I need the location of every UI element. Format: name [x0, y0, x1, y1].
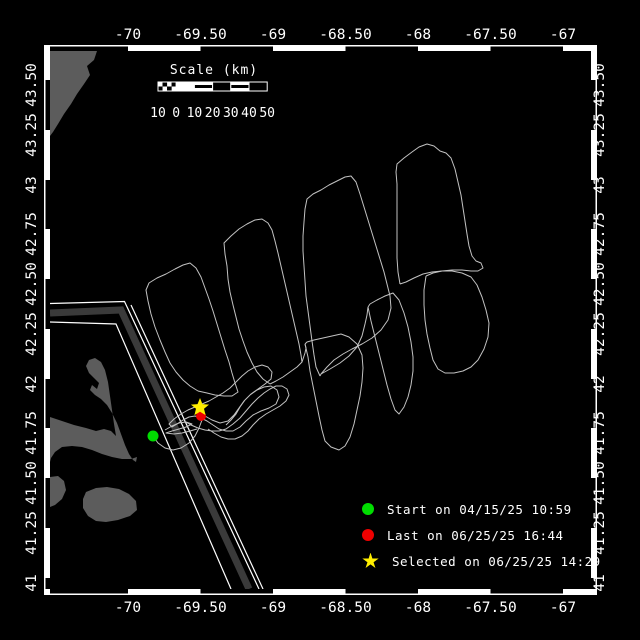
axis-tick-label: 41.50	[592, 461, 608, 505]
axis-tick-label: -67	[550, 600, 576, 616]
axis-tick-label: 42	[592, 375, 608, 392]
axis-tick-label: 41.25	[24, 511, 40, 555]
axis-tick-label: 42.50	[24, 262, 40, 306]
selected-marker-icon	[362, 553, 379, 570]
axis-tick-label: -69	[260, 600, 286, 616]
scale-bar-number: 20	[205, 106, 221, 121]
track-layer	[146, 144, 489, 450]
land-layer	[50, 51, 137, 522]
scale-bar-number: 40	[241, 106, 257, 121]
axis-tick-label: 43.25	[24, 113, 40, 157]
axis-tick-label: -68.50	[319, 600, 371, 616]
axis-tick-label: 42.75	[24, 212, 40, 256]
land-polygon	[50, 476, 66, 507]
axis-tick-label: 43	[24, 176, 40, 193]
start-marker-icon	[362, 503, 374, 515]
axis-tick-label: 41.75	[24, 411, 40, 455]
track-path	[321, 307, 368, 374]
axis-tick-label: 43.50	[24, 63, 40, 107]
axis-tick-label: -68	[405, 600, 431, 616]
axis-tick-label: -67.50	[464, 27, 516, 43]
axis-tick-label: 42	[24, 375, 40, 392]
track-path	[302, 344, 306, 362]
legend-selected-label: Selected on 06/25/25 14:29	[392, 554, 601, 569]
track-path	[303, 176, 391, 376]
axis-tick-label: 41	[592, 574, 608, 591]
axis-tick-label: 41.50	[24, 461, 40, 505]
axis-tick-label: 43	[592, 176, 608, 193]
scale-bar-title: Scale (km)	[158, 63, 270, 78]
legend-start-label: Start on 04/15/25 10:59	[387, 502, 572, 517]
scale-bar	[158, 82, 267, 91]
map-viewport: -70-70-69.50-69.50-69-69-68.50-68.50-68-…	[0, 0, 640, 640]
track-path	[224, 219, 302, 384]
map-canvas[interactable]: -70-70-69.50-69.50-69-69-68.50-68.50-68-…	[0, 0, 640, 640]
land-polygon	[50, 51, 97, 136]
map-frame	[0, 0, 640, 640]
axis-tick-label: 42.25	[24, 312, 40, 356]
legend-item-last: Last on 06/25/25 16:44	[362, 526, 564, 544]
axis-tick-label: -69.50	[174, 27, 226, 43]
axis-tick-label: 42.25	[592, 312, 608, 356]
axis-tick-label: -70	[115, 27, 141, 43]
axis-tick-label: 42.50	[592, 262, 608, 306]
scale-bar-number: 50	[259, 106, 275, 121]
land-polygon	[50, 358, 137, 462]
start-position-marker	[148, 431, 159, 442]
scale-bar-number: 10	[187, 106, 203, 121]
land-polygon	[83, 487, 137, 522]
lane-boundary-line	[131, 305, 263, 589]
axis-tick-label: -69	[260, 27, 286, 43]
track-path	[424, 271, 489, 373]
axis-tick-label: 42.75	[592, 212, 608, 256]
scale-bar-number: 0	[172, 106, 180, 121]
legend-last-label: Last on 06/25/25 16:44	[387, 528, 564, 543]
lane-boundary-line	[50, 322, 231, 589]
axis-tick-label: 41	[24, 574, 40, 591]
axis-tick-label: -67.50	[464, 600, 516, 616]
axis-tick-label: 41.25	[592, 511, 608, 555]
scale-bar-number: 10	[150, 106, 166, 121]
scale-bar-number: 30	[223, 106, 239, 121]
axis-tick-label: -69.50	[174, 600, 226, 616]
axis-tick-label: 41.75	[592, 411, 608, 455]
last-marker-icon	[362, 529, 374, 541]
axis-tick-label: -70	[115, 600, 141, 616]
track-path	[396, 144, 483, 284]
legend-item-start: Start on 04/15/25 10:59	[362, 500, 572, 518]
axis-tick-label: -67	[550, 27, 576, 43]
legend-item-selected: Selected on 06/25/25 14:29	[362, 552, 601, 570]
axis-tick-label: -68.50	[319, 27, 371, 43]
axis-tick-label: 43.50	[592, 63, 608, 107]
axis-tick-label: -68	[405, 27, 431, 43]
axis-tick-label: 43.25	[592, 113, 608, 157]
lane-band	[50, 310, 249, 589]
